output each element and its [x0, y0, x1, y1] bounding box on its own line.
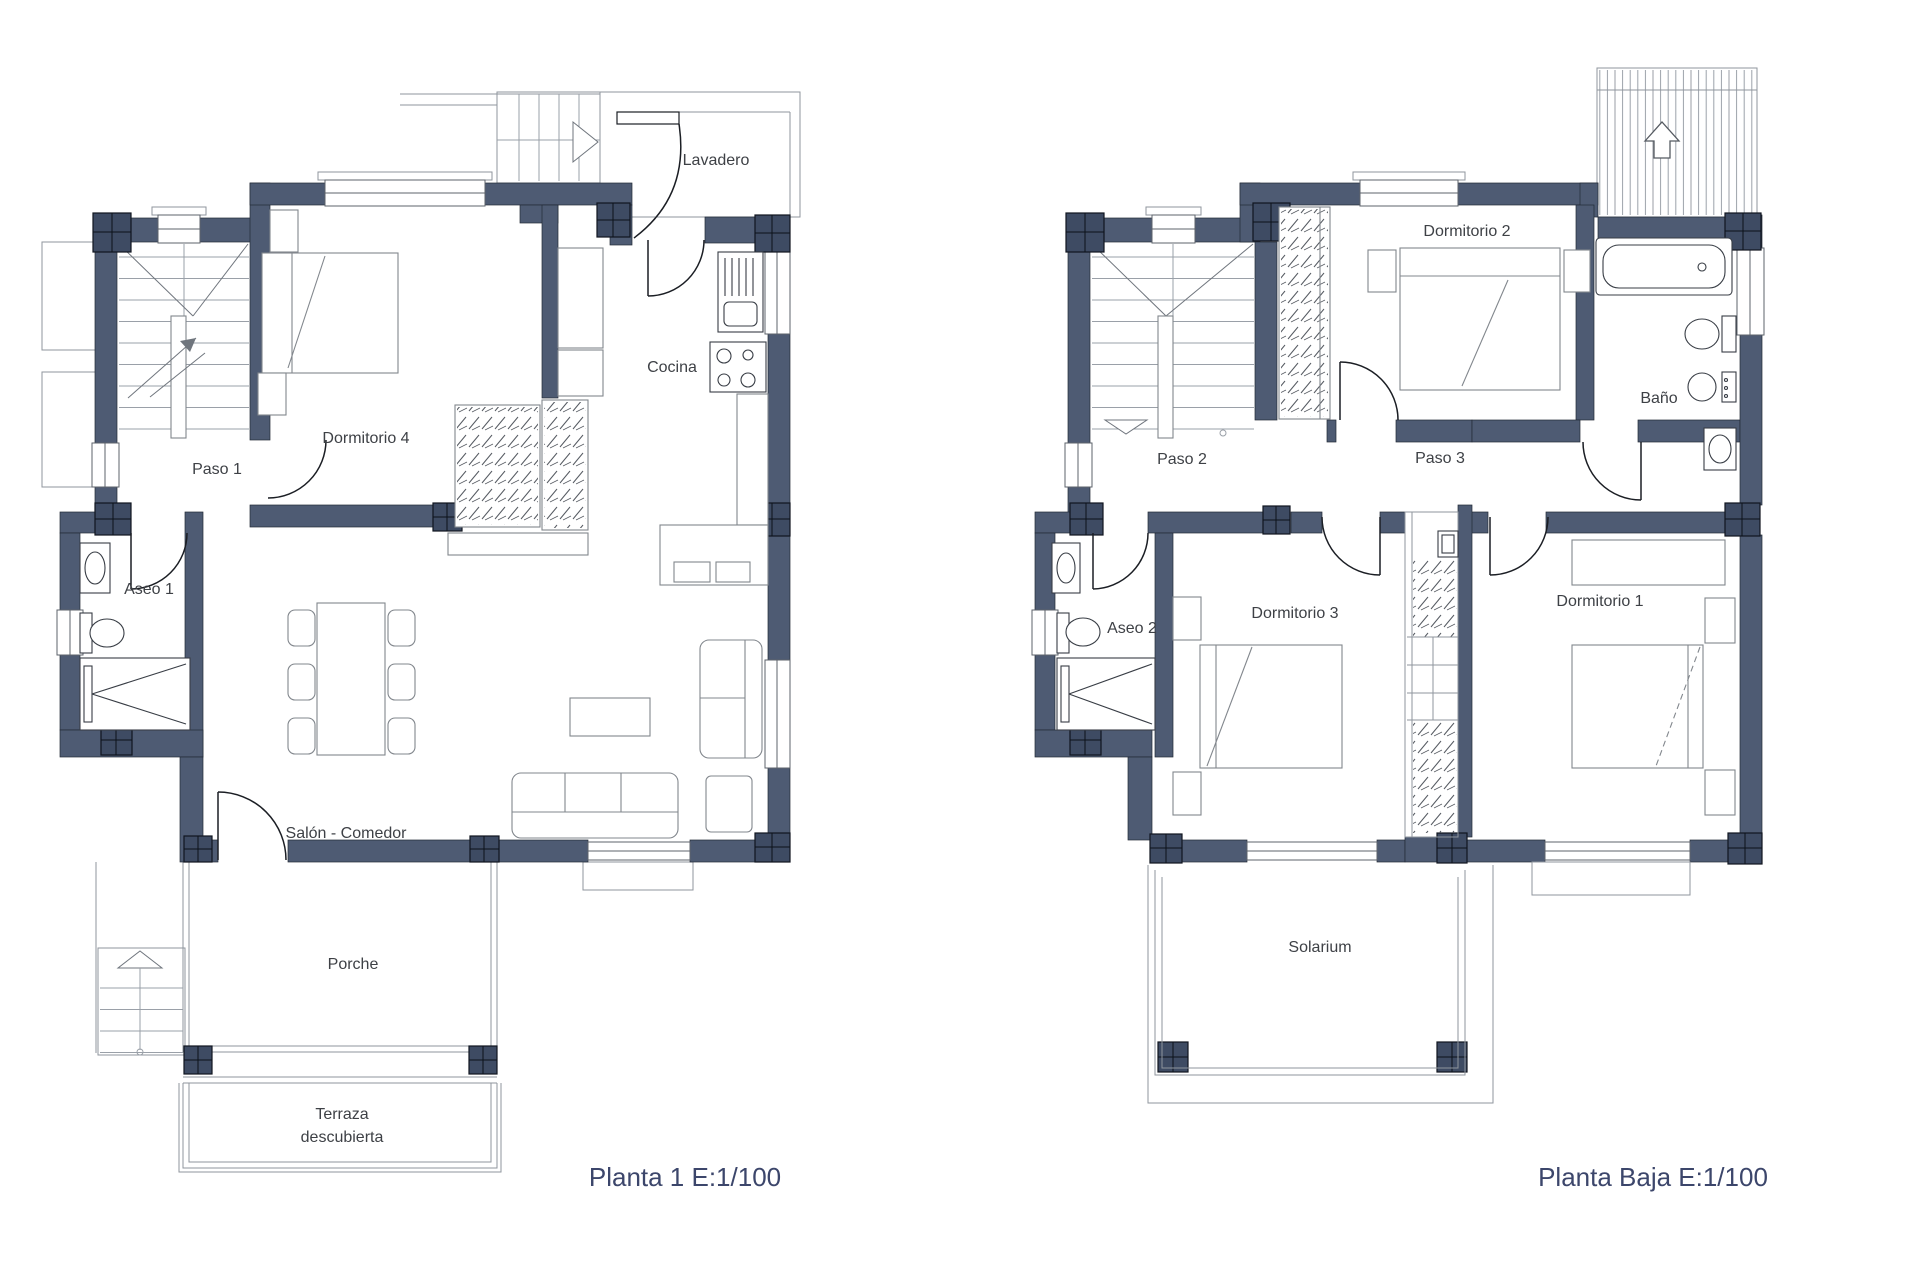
nightstand: [1705, 770, 1735, 815]
bed-dormitorio1: [1572, 645, 1703, 768]
nightstand: [1705, 598, 1735, 643]
armchair: [706, 776, 752, 832]
bed-dormitorio4: [262, 253, 398, 373]
coffee-table: [570, 698, 650, 736]
window-step-outside: [583, 862, 693, 890]
outside-planter-bottom: [42, 372, 97, 487]
room-label-dormitorio4: Dormitorio 4: [322, 430, 409, 447]
central-wardrobe: [1405, 512, 1458, 837]
oven: [718, 252, 763, 332]
wardrobe-dormitorio2: [1279, 207, 1330, 419]
dormitorio3-door-arc: [1322, 517, 1380, 575]
aseo2-toilet: [1057, 613, 1100, 653]
lavadero-entry-door-arc: [634, 124, 681, 238]
aseo2-sink: [1052, 543, 1080, 593]
floorplan-sheet: Lavadero Cocina Dormitorio 4 Paso 1 Aseo…: [0, 0, 1920, 1280]
salon-entry-door-arc: [218, 792, 286, 860]
aseo1-sink: [80, 543, 110, 593]
aseo1-shower: [80, 658, 190, 730]
bano-sink: [1704, 428, 1736, 470]
bano-bidet: [1688, 372, 1736, 402]
solarium-outline: [1148, 862, 1690, 1103]
terraza-outline: [179, 1083, 501, 1172]
room-label-terraza-1: Terraza: [315, 1106, 368, 1123]
plan-planta-baja: Dormitorio 2 Baño Paso 2 Paso 3 Aseo 2 D…: [1032, 68, 1768, 1192]
stair-up-arrow: [118, 951, 162, 968]
desk-dormitorio1: [1572, 540, 1725, 585]
dormitorio2-door-arc: [1340, 362, 1398, 420]
closet-cocina-side: [542, 400, 588, 530]
kitchen-cabinet: [558, 350, 603, 396]
room-label-dormitorio1: Dormitorio 1: [1556, 593, 1643, 610]
room-label-dormitorio2: Dormitorio 2: [1423, 223, 1510, 240]
room-label-dormitorio3: Dormitorio 3: [1251, 605, 1338, 622]
room-label-paso1: Paso 1: [192, 461, 242, 478]
lavadero-entry-door-leaf: [617, 112, 679, 124]
nightstand: [1564, 250, 1590, 292]
bano-toilet: [1685, 316, 1736, 352]
dining-table: [317, 603, 385, 755]
exterior-stair-bottom: [98, 948, 185, 1055]
room-label-aseo2: Aseo 2: [1107, 620, 1157, 637]
room-label-lavadero: Lavadero: [683, 152, 750, 169]
room-label-salon: Salón - Comedor: [286, 825, 408, 842]
room-label-terraza-2: descubierta: [301, 1129, 384, 1146]
nightstand: [1368, 250, 1396, 292]
room-label-aseo1: Aseo 1: [124, 581, 174, 598]
pergola: [1597, 68, 1757, 217]
floorplan-drawing: Lavadero Cocina Dormitorio 4 Paso 1 Aseo…: [0, 0, 1920, 1280]
nightstand: [270, 210, 298, 252]
aseo2-shower: [1057, 658, 1155, 730]
aseo2-door-arc: [1093, 533, 1148, 589]
room-label-solarium: Solarium: [1288, 939, 1351, 956]
room-label-paso3: Paso 3: [1415, 450, 1465, 467]
bathtub: [1596, 238, 1732, 295]
dormitorio4-door-arc: [268, 440, 326, 498]
bano-door-arc: [1583, 442, 1641, 500]
caption-planta-baja: Planta Baja E:1/100: [1538, 1162, 1768, 1192]
room-label-cocina: Cocina: [647, 359, 697, 376]
nightstand: [1173, 597, 1201, 640]
kitchen-cabinet: [558, 248, 603, 348]
outside-planter-top: [42, 242, 97, 350]
caption-planta1: Planta 1 E:1/100: [589, 1162, 781, 1192]
nightstand: [1173, 772, 1201, 815]
sofa-three-seat: [512, 773, 678, 838]
aseo1-toilet: [80, 613, 124, 653]
exterior-stair-top: [497, 92, 600, 183]
staircase-left: [119, 244, 249, 438]
dormitorio1-door-arc: [1490, 517, 1548, 575]
kitchen-counter: [737, 394, 768, 525]
plan-planta1: Lavadero Cocina Dormitorio 4 Paso 1 Aseo…: [42, 92, 800, 1192]
bed-dormitorio2: [1400, 248, 1560, 390]
nightstand: [258, 373, 286, 415]
room-label-bano: Baño: [1640, 390, 1677, 407]
room-label-porche: Porche: [328, 956, 379, 973]
kitchen-peninsula: [660, 525, 768, 585]
bed-dormitorio3: [1200, 645, 1342, 768]
cocina-door-arc: [648, 240, 704, 296]
staircase-right: [1092, 244, 1254, 438]
room-label-paso2: Paso 2: [1157, 451, 1207, 468]
hob: [710, 342, 766, 392]
wardrobe-dormitorio4: [455, 405, 540, 527]
sideboard: [448, 533, 588, 555]
window-step-outside: [1532, 862, 1690, 895]
sofa-two-seat: [700, 640, 762, 758]
